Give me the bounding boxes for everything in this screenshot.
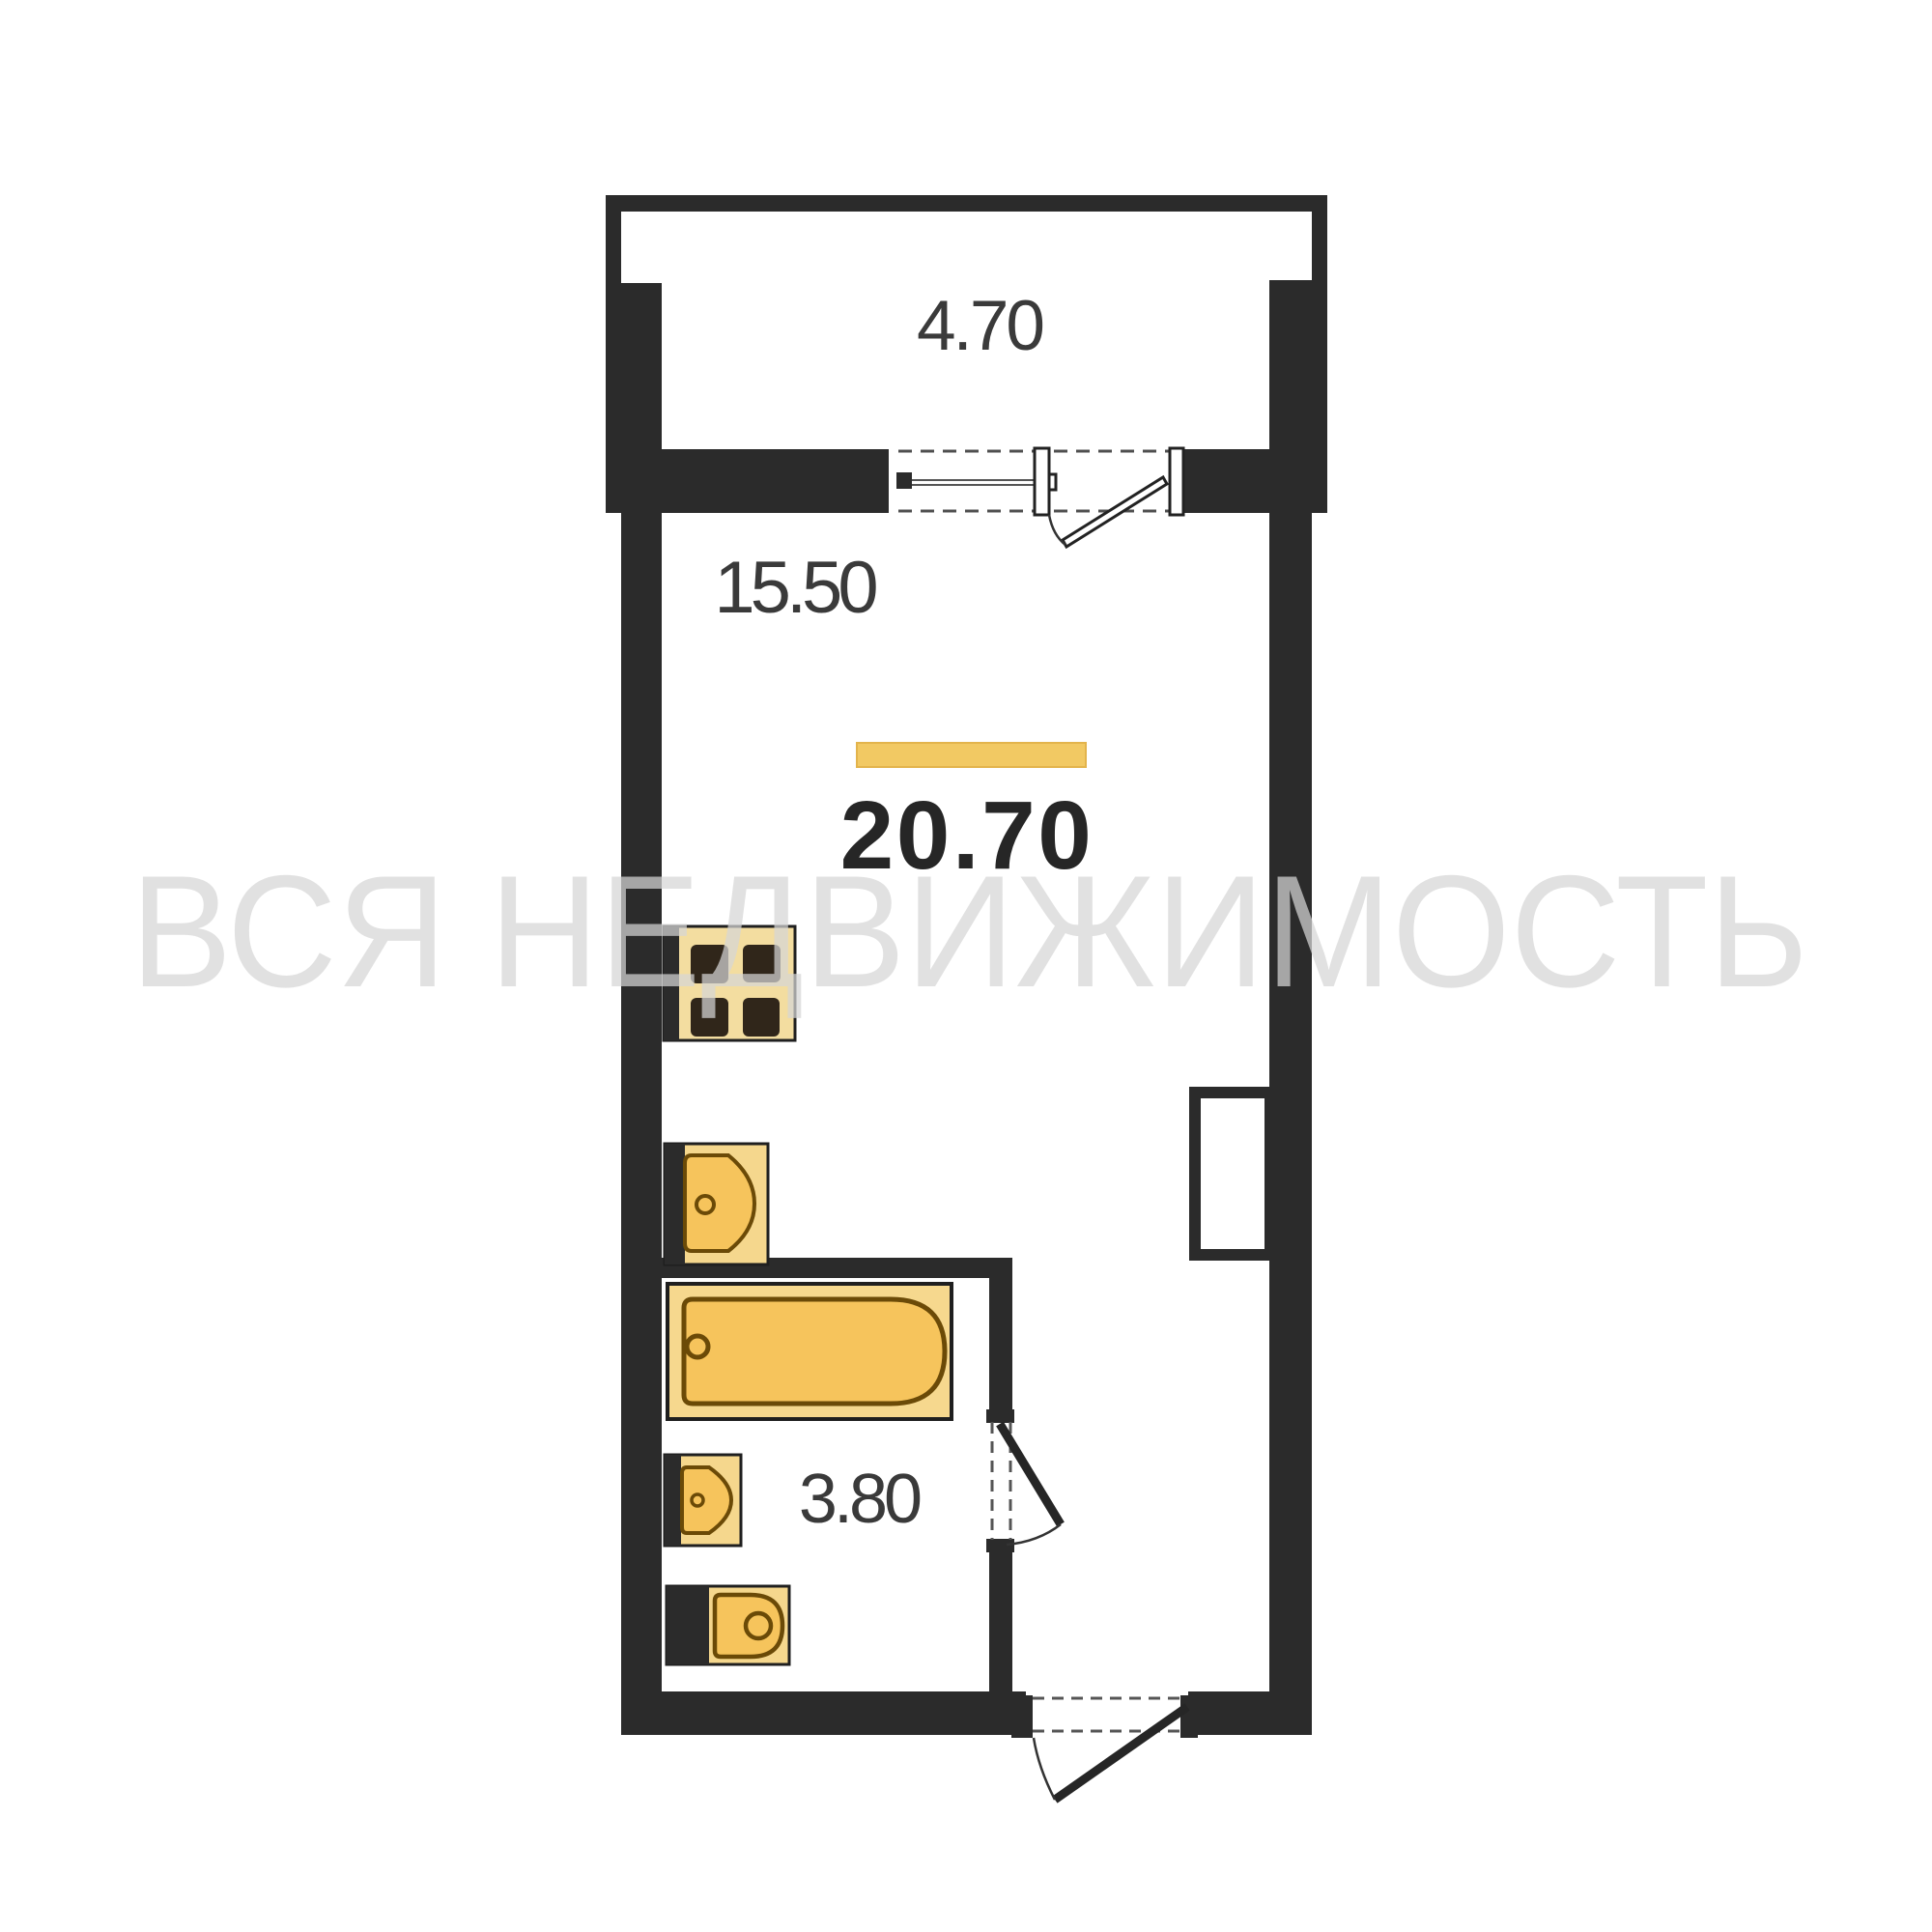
svg-text:ВСЯ НЕДВИЖИМОСТЬ: ВСЯ НЕДВИЖИМОСТЬ (130, 842, 1808, 1020)
svg-text:3.80: 3.80 (799, 1461, 921, 1538)
svg-text:15.50: 15.50 (714, 547, 876, 629)
svg-text:4.70: 4.70 (917, 287, 1042, 365)
